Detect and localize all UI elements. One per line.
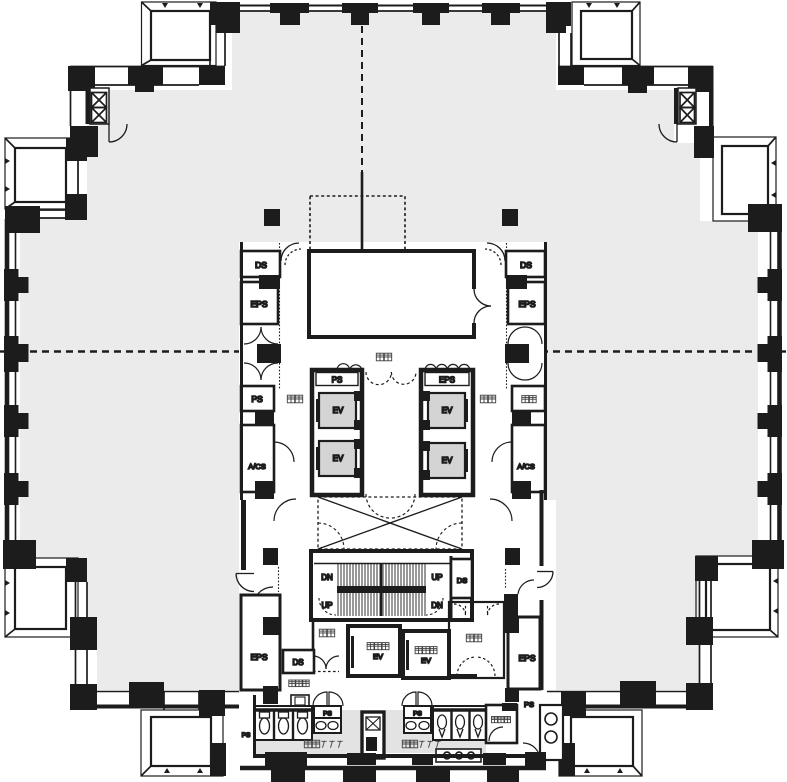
svg-text:UP: UP bbox=[431, 573, 442, 582]
svg-text:EV: EV bbox=[421, 656, 431, 665]
svg-text:EV: EV bbox=[333, 454, 344, 463]
svg-text:PS: PS bbox=[251, 394, 263, 404]
svg-text:DS: DS bbox=[520, 260, 532, 270]
svg-text:EV: EV bbox=[442, 456, 453, 465]
svg-text:DN: DN bbox=[431, 601, 443, 610]
svg-text:EV: EV bbox=[442, 406, 453, 415]
svg-text:PS: PS bbox=[332, 376, 343, 385]
svg-text:EPS: EPS bbox=[250, 299, 267, 309]
svg-text:DS: DS bbox=[255, 260, 267, 270]
svg-text:PS: PS bbox=[242, 732, 251, 739]
svg-text:A/CS: A/CS bbox=[517, 462, 535, 471]
svg-text:EPS: EPS bbox=[250, 652, 267, 662]
svg-text:DS: DS bbox=[457, 576, 467, 585]
svg-text:EPS: EPS bbox=[518, 653, 535, 663]
svg-text:EV: EV bbox=[373, 652, 383, 661]
svg-text:A/CS: A/CS bbox=[248, 462, 266, 471]
svg-text:EPS: EPS bbox=[439, 376, 455, 385]
svg-text:DS: DS bbox=[292, 658, 303, 667]
svg-text:EV: EV bbox=[333, 406, 344, 415]
svg-text:DN: DN bbox=[321, 573, 333, 582]
svg-text:PS: PS bbox=[413, 711, 422, 718]
svg-text:PS: PS bbox=[323, 711, 332, 718]
svg-text:EPS: EPS bbox=[518, 299, 535, 309]
svg-text:PS: PS bbox=[524, 700, 534, 709]
svg-text:B: B bbox=[369, 743, 374, 750]
